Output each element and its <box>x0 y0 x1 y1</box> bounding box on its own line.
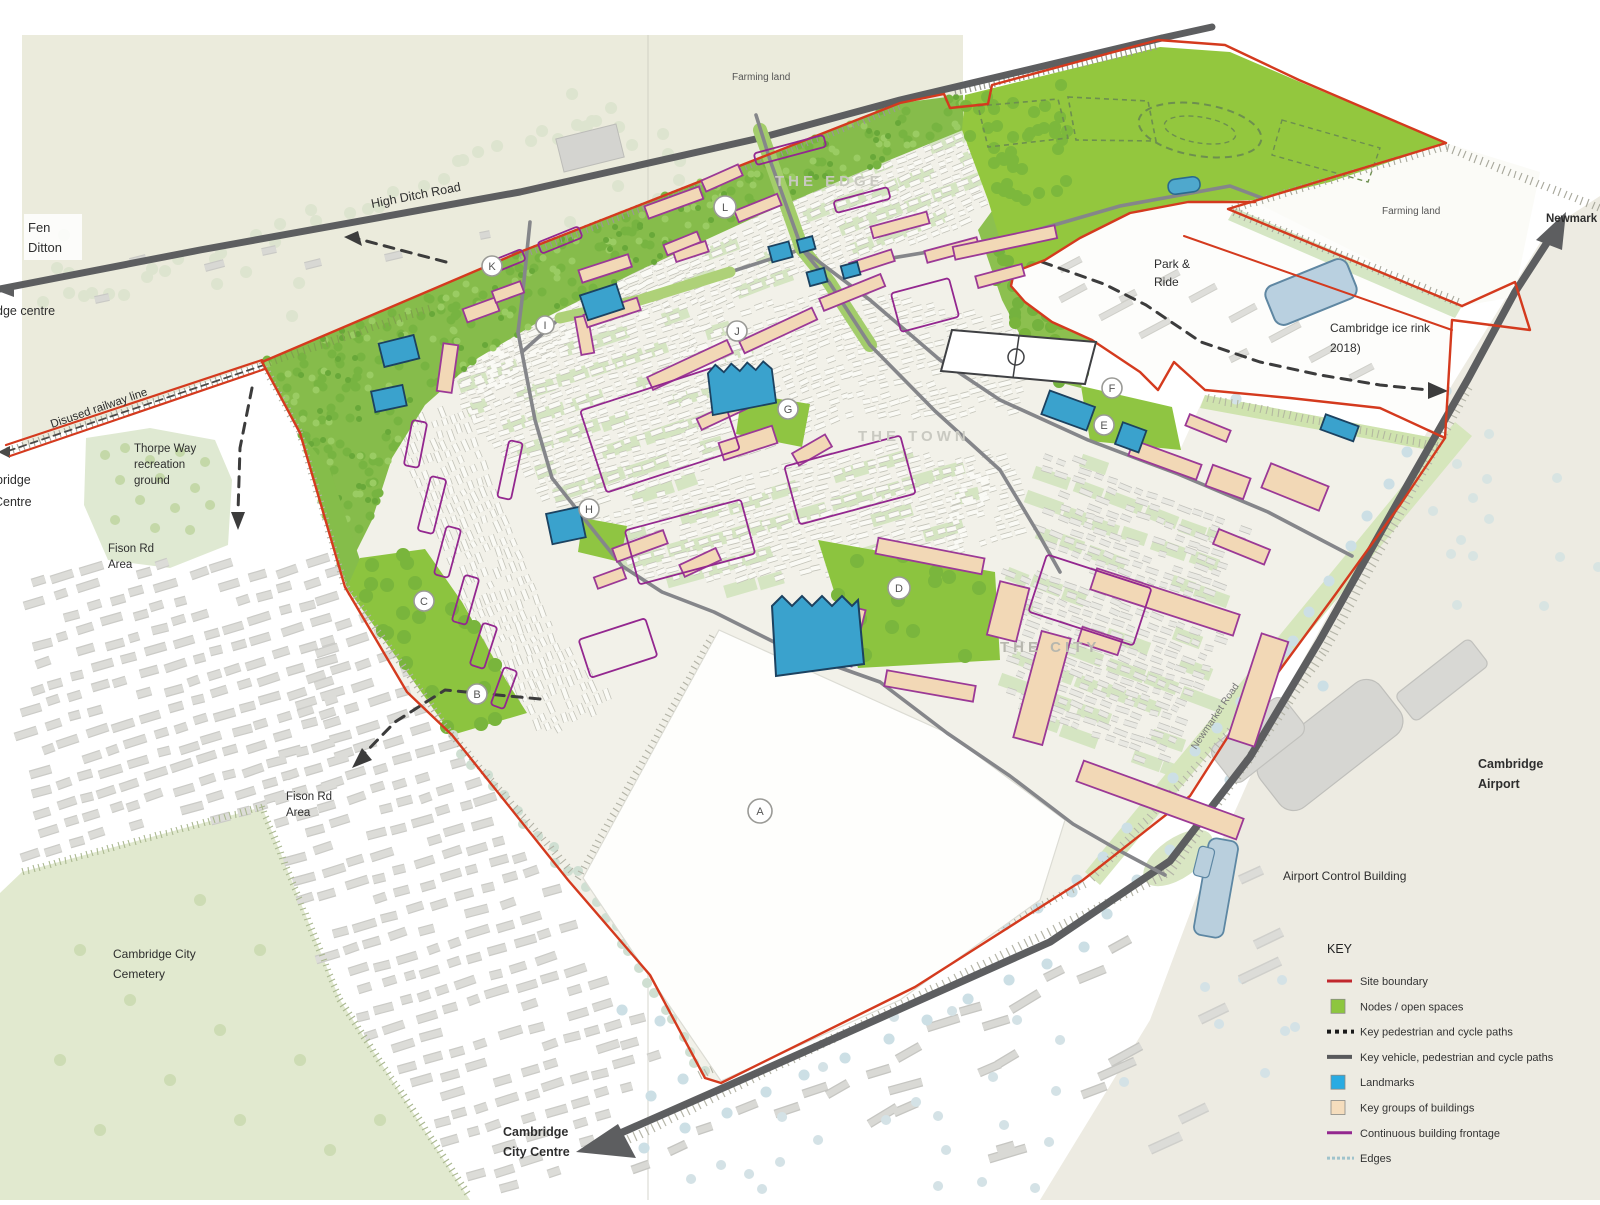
svg-text:Cambridge: Cambridge <box>1478 757 1543 771</box>
svg-text:bridge: bridge <box>0 473 31 487</box>
svg-text:Cambridge: Cambridge <box>503 1125 568 1139</box>
svg-text:Continuous building frontage: Continuous building frontage <box>1360 1128 1500 1140</box>
svg-text:Key groups of buildings: Key groups of buildings <box>1360 1103 1475 1115</box>
svg-text:2018): 2018) <box>1330 341 1361 355</box>
svg-text:Nodes / open spaces: Nodes / open spaces <box>1360 1001 1464 1013</box>
svg-text:Landmarks: Landmarks <box>1360 1077 1415 1089</box>
svg-text:Thorpe Way: Thorpe Way <box>134 443 196 455</box>
svg-text:Fen: Fen <box>28 220 50 235</box>
svg-text:Cambridge ice rink: Cambridge ice rink <box>1330 321 1431 335</box>
svg-text:F: F <box>1109 383 1116 395</box>
svg-text:recreation: recreation <box>134 459 185 471</box>
svg-text:B: B <box>473 689 480 701</box>
svg-text:Cambridge City: Cambridge City <box>113 947 196 961</box>
svg-text:Airport Control Building: Airport Control Building <box>1283 869 1406 883</box>
svg-text:Cemetery: Cemetery <box>113 967 165 981</box>
svg-text:Ditton: Ditton <box>28 240 62 255</box>
svg-text:Key vehicle, pedestrian and cy: Key vehicle, pedestrian and cycle paths <box>1360 1052 1554 1064</box>
svg-text:Farming land: Farming land <box>732 72 790 83</box>
svg-text:I: I <box>543 320 546 332</box>
svg-text:K: K <box>488 261 496 273</box>
svg-text:dge centre: dge centre <box>0 304 55 318</box>
svg-text:Fison Rd: Fison Rd <box>108 543 154 555</box>
svg-text:KEY: KEY <box>1327 942 1353 956</box>
svg-text:Airport: Airport <box>1478 777 1521 791</box>
svg-text:Area: Area <box>108 559 133 571</box>
svg-text:A: A <box>756 806 764 818</box>
svg-text:Park &: Park & <box>1154 257 1190 271</box>
svg-text:Newmark: Newmark <box>1546 213 1598 225</box>
svg-text:THE CITY: THE CITY <box>1000 639 1100 656</box>
svg-text:H: H <box>585 504 593 516</box>
svg-text:C: C <box>420 596 428 608</box>
svg-text:E: E <box>1100 420 1107 432</box>
svg-text:D: D <box>895 583 903 595</box>
svg-text:L: L <box>722 202 728 214</box>
svg-text:THE EDGE: THE EDGE <box>775 173 884 190</box>
svg-text:Area: Area <box>286 807 311 819</box>
svg-text:Key pedestrian and cycle paths: Key pedestrian and cycle paths <box>1360 1027 1513 1039</box>
svg-text:City Centre: City Centre <box>503 1145 570 1159</box>
svg-text:Fison Rd: Fison Rd <box>286 791 332 803</box>
svg-text:Site boundary: Site boundary <box>1360 976 1428 988</box>
svg-text:G: G <box>784 404 793 416</box>
svg-text:ground: ground <box>134 475 170 487</box>
svg-text:THE TOWN: THE TOWN <box>858 428 970 445</box>
svg-text:Edges: Edges <box>1360 1153 1392 1165</box>
svg-text:J: J <box>734 326 740 338</box>
svg-text:Ride: Ride <box>1154 275 1179 289</box>
svg-text:Farming land: Farming land <box>1382 206 1440 217</box>
svg-text:Centre: Centre <box>0 495 32 509</box>
